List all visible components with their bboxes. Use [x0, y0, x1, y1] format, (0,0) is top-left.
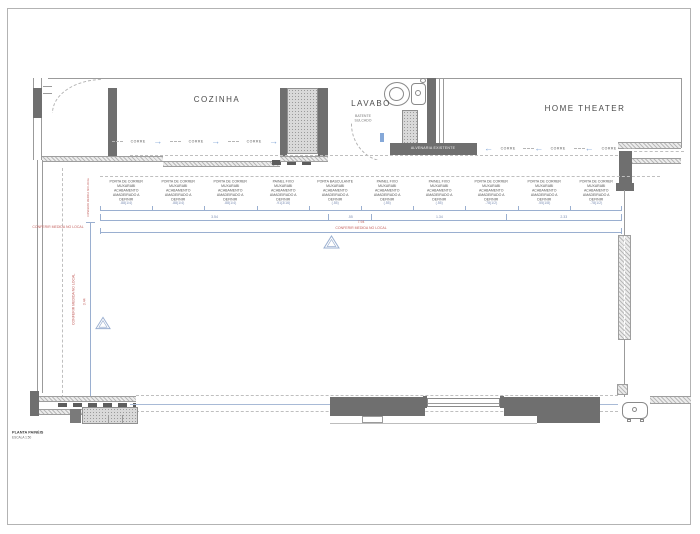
panel-column: PORTA DE CORRER MUXARABI ACABAMENTO AMAD…: [518, 180, 570, 211]
wall-right-line: [681, 78, 682, 148]
dimension-tick: [361, 206, 413, 211]
room-label-cozinha: COZINHA: [157, 95, 277, 104]
wall-segment: [537, 397, 600, 423]
wall-line: [330, 423, 537, 424]
panel-dimension: .88(1/4): [152, 202, 204, 206]
slide-label: CORRE: [501, 147, 516, 151]
wall-top-line: [48, 78, 681, 79]
revision-triangle-icon: [323, 235, 340, 249]
panel-dimension: .91(3/16): [257, 202, 309, 206]
panel-label: PORTA DE CORRER MUXARABI ACABAMENTO AMAD…: [570, 180, 622, 202]
slide-direction-marker: ←CORRE: [484, 144, 534, 153]
panel-label: PORTA DE CORRER MUXARABI ACABAMENTO AMAD…: [152, 180, 204, 202]
wall-pillar: [318, 88, 328, 158]
dimension-value: 3.54: [101, 216, 328, 220]
site-check-note-vertical: CONFERIR MEDIDA NO LOCAL: [72, 274, 76, 325]
panel-dimension: (.55): [361, 202, 413, 206]
dimension-tick: [100, 206, 152, 211]
wall-pillar: [108, 88, 117, 158]
dimension-line-vertical: [90, 222, 91, 398]
dimension-tick: [621, 228, 622, 234]
panel-column: PORTA DE CORRER MUXARABI ACABAMENTO AMAD…: [204, 180, 256, 211]
floor-plan: ALVENARIA EXISTENTE BATENTE SULCADO COZI…: [0, 0, 700, 534]
slide-label: CORRE: [131, 140, 146, 144]
dimension-segment: 3.54: [100, 214, 328, 220]
panel-label: PORTA DE CORRER MUXARABI ACABAMENTO AMAD…: [518, 180, 570, 202]
dimension-tick: [518, 206, 570, 211]
wall-pillar: [280, 88, 287, 158]
panel-column: PAINEL FIXO MUXARABI ACABAMENTO AMADEIRA…: [257, 180, 309, 211]
dimension-value: 1.34: [372, 216, 506, 220]
panel-column: PORTA DE CORRER MUXARABI ACABAMENTO AMAD…: [570, 180, 622, 211]
dimension-value-vertical: 3.44: [83, 298, 87, 305]
wall-segment: [624, 190, 625, 235]
dimension-tick: [204, 206, 256, 211]
panel-dimension: (.55): [413, 202, 465, 206]
sheet-border: [7, 8, 691, 525]
dimension-tick: [465, 206, 517, 211]
basin-foot: [627, 419, 631, 422]
slide-label: CORRE: [601, 147, 616, 151]
wall-center-dash: [624, 236, 625, 339]
arrow-left-icon: ←: [484, 144, 493, 153]
arrow-left-icon: ←: [534, 144, 543, 153]
wall-segment: [439, 78, 444, 146]
slide-direction-marker: CORRE→: [228, 137, 278, 146]
leader-dash: [624, 148, 635, 149]
room-label-home-theater: HOME THEATER: [525, 104, 645, 113]
door-jamb-tick: [43, 93, 52, 94]
plan-title: PLANTA PAINÉIS: [12, 430, 43, 435]
site-check-note: CONFERIR MEDIDA NO LOCAL: [321, 226, 401, 231]
room-label-lavabo: LAVABO: [341, 99, 401, 108]
hatched-wall: [632, 158, 681, 164]
hatched-wall: [280, 156, 328, 162]
slide-direction-marker: ←CORRE: [585, 144, 635, 153]
track-dash-line: [62, 168, 63, 398]
leader-dash: [228, 141, 239, 142]
panel-label: PAINEL FIXO MUXARABI ACABAMENTO AMADEIRA…: [257, 180, 309, 202]
window-center-line: [428, 403, 499, 404]
revision-triangle-icon: [95, 316, 111, 330]
panel-column: PORTA DE CORRER MUXARABI ACABAMENTO AMAD…: [465, 180, 517, 211]
arrow-right-icon: →: [269, 137, 278, 146]
dimension-value: 2.33: [507, 216, 621, 220]
window-in-plan: [427, 398, 500, 407]
dimension-value: .55: [329, 216, 370, 220]
hatched-wall: [39, 396, 136, 402]
panel-column: PAINEL FIXO MUXARABI ACABAMENTO AMADEIRA…: [361, 180, 413, 211]
arrow-right-icon: →: [153, 137, 162, 146]
dimension-tick: [257, 206, 309, 211]
panel-label: PORTA DE CORRER MUXARABI ACABAMENTO AMAD…: [204, 180, 256, 202]
arrow-right-icon: →: [211, 137, 220, 146]
dimension-tick: [413, 206, 465, 211]
wall-segment: [33, 88, 42, 118]
valve-icon: [420, 78, 426, 83]
track-dash-line: [634, 151, 684, 152]
basin-foot: [640, 419, 644, 422]
wall-segment: [37, 160, 43, 393]
door-handle-icon: [380, 133, 384, 142]
dimension-tick: [86, 222, 95, 223]
arrow-left-icon: ←: [585, 144, 594, 153]
hatched-wall: [163, 161, 280, 167]
panel-dimension: .78(1/2): [570, 202, 622, 206]
panel-dimension: (.55): [309, 202, 361, 206]
slide-markers-home-theater: ←CORRE←CORRE←CORRE: [484, 144, 612, 153]
leader-dash: [523, 148, 534, 149]
panel-dimension: .78(1/2): [465, 202, 517, 206]
masonry-block: [402, 110, 418, 144]
dimension-total-line: [100, 232, 622, 233]
wall-segment: [427, 78, 436, 146]
plan-scale: ESCALA 1:50: [12, 436, 31, 440]
hatched-wall: [617, 384, 628, 395]
track-dash-line: [130, 155, 618, 156]
wall-segment: [330, 397, 425, 416]
dimension-tick: [152, 206, 204, 211]
slide-direction-marker: CORRE→: [112, 137, 162, 146]
slide-markers-kitchen: CORRE→CORRE→CORRE→: [112, 137, 278, 146]
panel-label: PORTA DE CORRER MUXARABI ACABAMENTO AMAD…: [100, 180, 152, 202]
panel-label: PAINEL FIXO MUXARABI ACABAMENTO AMADEIRA…: [413, 180, 465, 202]
wall-note: ALVENARIA EXISTENTE: [390, 146, 477, 151]
wall-blockette: [70, 409, 81, 423]
slide-label: CORRE: [551, 147, 566, 151]
site-check-note-vertical: CONFERIR MEDIDA NO LOCAL: [87, 178, 90, 217]
hatched-wall: [618, 235, 631, 340]
hatched-wall: [42, 156, 163, 162]
arc-line: [52, 79, 102, 113]
panel-label: PAINEL FIXO MUXARABI ACABAMENTO AMADEIRA…: [361, 180, 413, 202]
panel-column: PAINEL FIXO MUXARABI ACABAMENTO AMADEIRA…: [413, 180, 465, 211]
leader-dash: [574, 148, 585, 149]
panel-spec-row: PORTA DE CORRER MUXARABI ACABAMENTO AMAD…: [100, 180, 622, 211]
panel-dimension: .88(1/4): [204, 202, 256, 206]
sink-drain-icon: [415, 90, 421, 96]
wall-tick: [108, 415, 109, 424]
track-dash-line: [136, 395, 618, 396]
jamb-note: BATENTE SULCADO: [348, 114, 378, 123]
door-recess: [362, 416, 383, 423]
basin-drain-icon: [632, 407, 637, 412]
panel-column: PORTA DE CORRER MUXARABI ACABAMENTO AMAD…: [152, 180, 204, 211]
slide-label: CORRE: [246, 140, 261, 144]
leader-dash-line: [100, 176, 660, 177]
floor-texture: [82, 407, 138, 424]
wall-tick: [122, 415, 123, 424]
panel-label: PORTA BASCULANTE MUXARABI ACABAMENTO AMA…: [309, 180, 361, 202]
site-check-note: CONFERIR MEDIDA NO LOCAL: [28, 225, 88, 230]
dimension-total-value: 7.94: [321, 220, 401, 225]
leader-dash: [112, 141, 123, 142]
slide-direction-marker: ←CORRE: [534, 144, 584, 153]
dimension-segment: 2.33: [506, 214, 622, 220]
dimension-tick: [570, 206, 622, 211]
masonry-block: [287, 88, 318, 154]
panel-label: PORTA DE CORRER MUXARABI ACABAMENTO AMAD…: [465, 180, 517, 202]
door-swing-arc: [52, 79, 102, 113]
leader-dash: [170, 141, 181, 142]
panel-column: PORTA DE CORRER MUXARABI ACABAMENTO AMAD…: [100, 180, 152, 211]
dimension-tick: [309, 206, 361, 211]
slide-label: CORRE: [188, 140, 203, 144]
slide-direction-marker: CORRE→: [170, 137, 220, 146]
wall-segment: [504, 397, 537, 416]
door-jamb-tick: [43, 86, 52, 87]
hatched-wall: [650, 396, 691, 404]
panel-column: PORTA BASCULANTE MUXARABI ACABAMENTO AMA…: [309, 180, 361, 211]
panel-dimension: .55(1/8): [518, 202, 570, 206]
panel-dimension: .88(1/4): [100, 202, 152, 206]
dimension-tick: [100, 228, 101, 234]
wall-pillar: [30, 391, 39, 416]
